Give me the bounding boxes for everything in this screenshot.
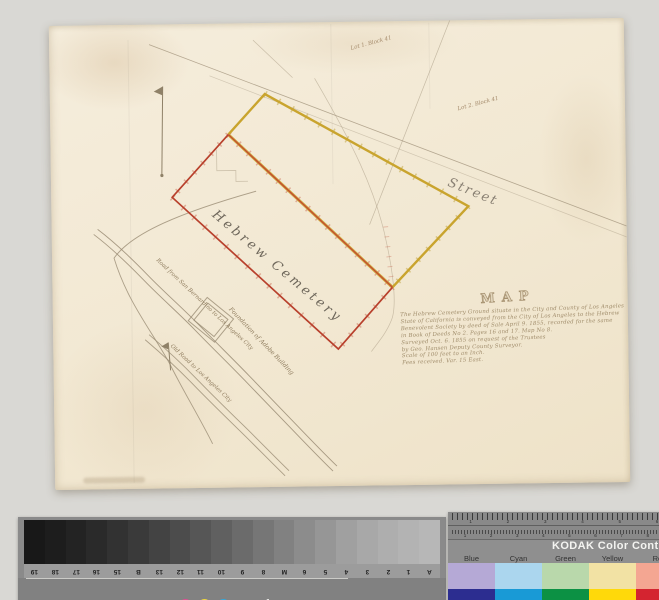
gray-scale-step-label: 13	[149, 568, 170, 575]
gray-scale-step-label: 3	[357, 568, 378, 575]
color-label-cyan: Cyan	[495, 554, 542, 563]
color-patch-solid-cyan	[495, 589, 542, 600]
street-line	[149, 38, 627, 233]
color-column-labels: BlueCyanGreenYellowRed	[448, 554, 659, 563]
ruler-number: 2	[478, 533, 504, 539]
map-title: MAP	[480, 288, 536, 307]
gray-scale-step	[24, 520, 45, 564]
lot-label-top: Lot 1. Block 41	[349, 35, 392, 52]
color-control-title: KODAK Color Control Patches	[552, 540, 659, 552]
color-label-green: Green	[542, 554, 589, 563]
ruler-number: 1	[452, 519, 489, 525]
gray-scale-step-label: 5	[315, 568, 336, 575]
survey-map-drawing: Street Hebrew Cemetery MAP Foundation of…	[49, 18, 630, 490]
street-label: Street	[446, 175, 501, 209]
gray-scale-step	[378, 520, 399, 564]
survey-pole	[161, 86, 164, 174]
color-patch-tint-cyan	[495, 563, 542, 589]
gray-scale-footer-inner: KODAK Gray Scale CYM Kodak	[18, 578, 446, 600]
color-label-yellow: Yellow	[589, 554, 636, 563]
gray-scale-step-label: A	[419, 568, 440, 575]
gray-scale-step-label: 10	[211, 568, 232, 575]
gray-scale-step-label: 18	[45, 568, 66, 575]
ruler-number: 3	[527, 519, 564, 525]
color-patch-row-tints	[448, 563, 659, 589]
ruler-number: 5	[556, 533, 582, 539]
paper-crease	[331, 24, 333, 184]
gray-scale-step	[190, 520, 211, 564]
gray-scale-step	[274, 520, 295, 564]
gray-scale-step	[253, 520, 274, 564]
ruler-numbers: 12345678910	[452, 533, 659, 539]
gray-scale-step-label: 9	[232, 568, 253, 575]
survey-line	[253, 40, 293, 79]
paper-crease	[429, 23, 430, 109]
ruler-number: 7	[609, 533, 635, 539]
pencil-step-line	[217, 149, 248, 181]
gray-scale-step	[419, 520, 440, 564]
gray-scale-step-label: 4	[336, 568, 357, 575]
gray-scale-step-label: 6	[294, 568, 315, 575]
color-patch-row-solids	[448, 589, 659, 600]
ruler-bottom: 12345678910	[448, 526, 659, 540]
ruler-numbers: 1234567	[452, 519, 659, 525]
ruler-number: 5	[601, 519, 638, 525]
old-road-line	[145, 338, 285, 478]
survey-point	[160, 174, 163, 177]
ruler-number: 8	[635, 533, 659, 539]
color-patch-solid-red	[636, 589, 659, 600]
gray-scale-step	[398, 520, 419, 564]
gray-scale-step	[128, 520, 149, 564]
gray-scale-step	[66, 520, 87, 564]
kodak-gray-scale-card: 1918171615B1312111098M654321A KODAK Gray…	[18, 517, 446, 600]
paper-crease	[128, 40, 134, 483]
gray-scale-step-label: B	[128, 568, 149, 575]
color-patch-tint-blue	[448, 563, 495, 589]
gray-scale-step	[45, 520, 66, 564]
map-paper-sheet: Street Hebrew Cemetery MAP Foundation of…	[49, 18, 630, 490]
ruler-number: 2	[489, 519, 526, 525]
gray-scale-step-label: 15	[107, 568, 128, 575]
color-patch-tint-green	[542, 563, 589, 589]
color-label-blue: Blue	[448, 554, 495, 563]
gray-scale-step-label: 17	[66, 568, 87, 575]
gray-scale-step	[357, 520, 378, 564]
gray-scale-step	[149, 520, 170, 564]
road-line	[94, 231, 333, 474]
gray-scale-step-label: 2	[378, 568, 399, 575]
color-patch-solid-yellow	[589, 589, 636, 600]
color-patch-tint-yellow	[589, 563, 636, 589]
foundation-label: Foundation of Adobe Building	[227, 305, 296, 376]
catalog-mark	[83, 477, 145, 484]
gray-scale-footer: KODAK Gray Scale CYM Kodak	[18, 578, 446, 600]
gray-scale-step	[211, 520, 232, 564]
gray-scale-step-label: 1	[398, 568, 419, 575]
color-patch-solid-blue	[448, 589, 495, 600]
lot-label-right: Lot 2. Block 41	[456, 96, 499, 113]
color-patch-tint-red	[636, 563, 659, 589]
gray-scale-step	[294, 520, 315, 564]
survey-note: The Hebrew Cemetery Ground situate in th…	[400, 306, 562, 368]
gray-scale-step-label: 16	[86, 568, 107, 575]
gray-scale-step	[336, 520, 357, 564]
gray-scale-step	[170, 520, 191, 564]
ruler-number: 3	[504, 533, 530, 539]
ruler-number: 1	[452, 533, 478, 539]
gray-scale-step	[107, 520, 128, 564]
scanned-map-photo: Street Hebrew Cemetery MAP Foundation of…	[0, 0, 659, 600]
gray-scale-step-label: 19	[24, 568, 45, 575]
gray-scale-step	[86, 520, 107, 564]
gray-scale-step-numbers: 1918171615B1312111098M654321A	[24, 564, 440, 578]
ruler-number: 4	[530, 533, 556, 539]
color-label-red: Red	[636, 554, 659, 563]
gray-scale-step-label: 8	[253, 568, 274, 575]
ruler-number: 6	[638, 519, 659, 525]
adobe-foundation-outline	[188, 297, 233, 342]
gray-scale-step-label: 12	[170, 568, 191, 575]
ruler-top: 1234567	[448, 512, 659, 526]
gray-scale-steps	[24, 520, 440, 564]
street-line-parallel	[209, 70, 626, 243]
ruler-number: 6	[582, 533, 608, 539]
gray-scale-step-label: 11	[190, 568, 211, 575]
ruler-number: 4	[564, 519, 601, 525]
survey-flag-icon	[154, 86, 163, 95]
gray-scale-step	[315, 520, 336, 564]
gray-scale-step	[232, 520, 253, 564]
kodak-color-control-card: 1234567 12345678910 KODAK Color Control …	[448, 512, 659, 600]
gray-scale-step-label: M	[274, 568, 295, 575]
old-road-label: Old Road to Los Angeles City	[169, 343, 233, 404]
color-patch-solid-green	[542, 589, 589, 600]
